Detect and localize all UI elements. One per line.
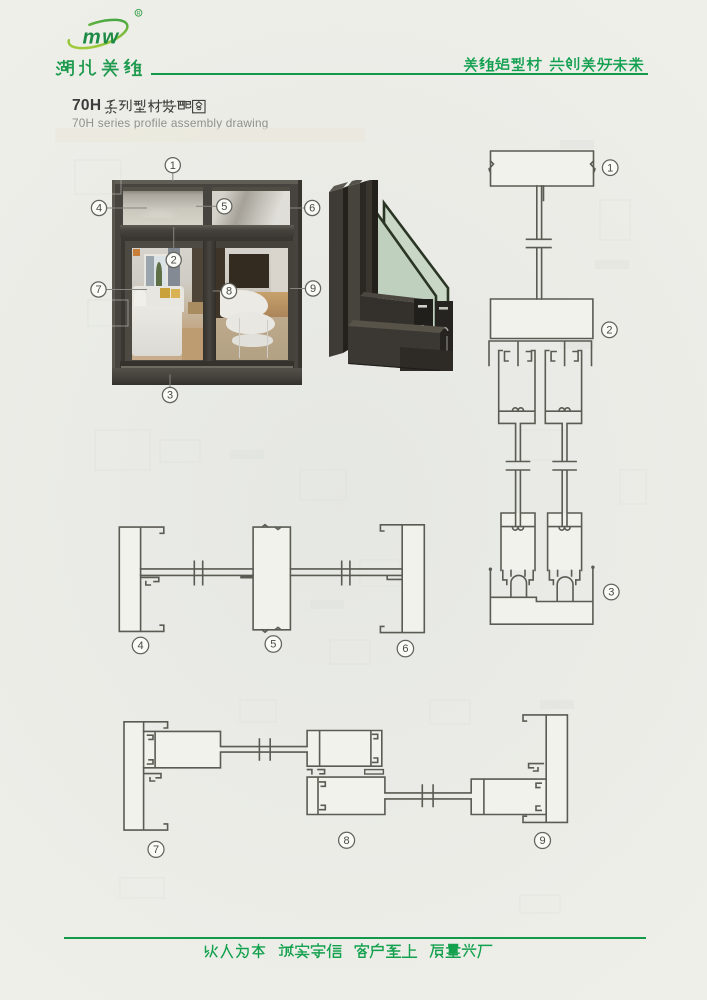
svg-text:9: 9 bbox=[539, 835, 545, 847]
svg-text:2: 2 bbox=[171, 255, 177, 267]
svg-text:6: 6 bbox=[309, 203, 315, 215]
svg-text:9: 9 bbox=[310, 283, 316, 295]
svg-text:5: 5 bbox=[221, 201, 227, 213]
svg-text:8: 8 bbox=[226, 286, 232, 298]
svg-text:7: 7 bbox=[153, 844, 159, 856]
svg-text:4: 4 bbox=[96, 203, 102, 215]
svg-text:4: 4 bbox=[137, 640, 143, 652]
svg-text:8: 8 bbox=[344, 835, 350, 847]
svg-text:7: 7 bbox=[95, 284, 101, 296]
svg-text:2: 2 bbox=[606, 324, 612, 336]
svg-text:5: 5 bbox=[270, 639, 276, 651]
svg-text:3: 3 bbox=[608, 587, 614, 599]
svg-text:1: 1 bbox=[170, 160, 176, 172]
svg-text:3: 3 bbox=[167, 390, 173, 402]
svg-text:6: 6 bbox=[402, 643, 408, 655]
svg-text:1: 1 bbox=[607, 162, 613, 174]
